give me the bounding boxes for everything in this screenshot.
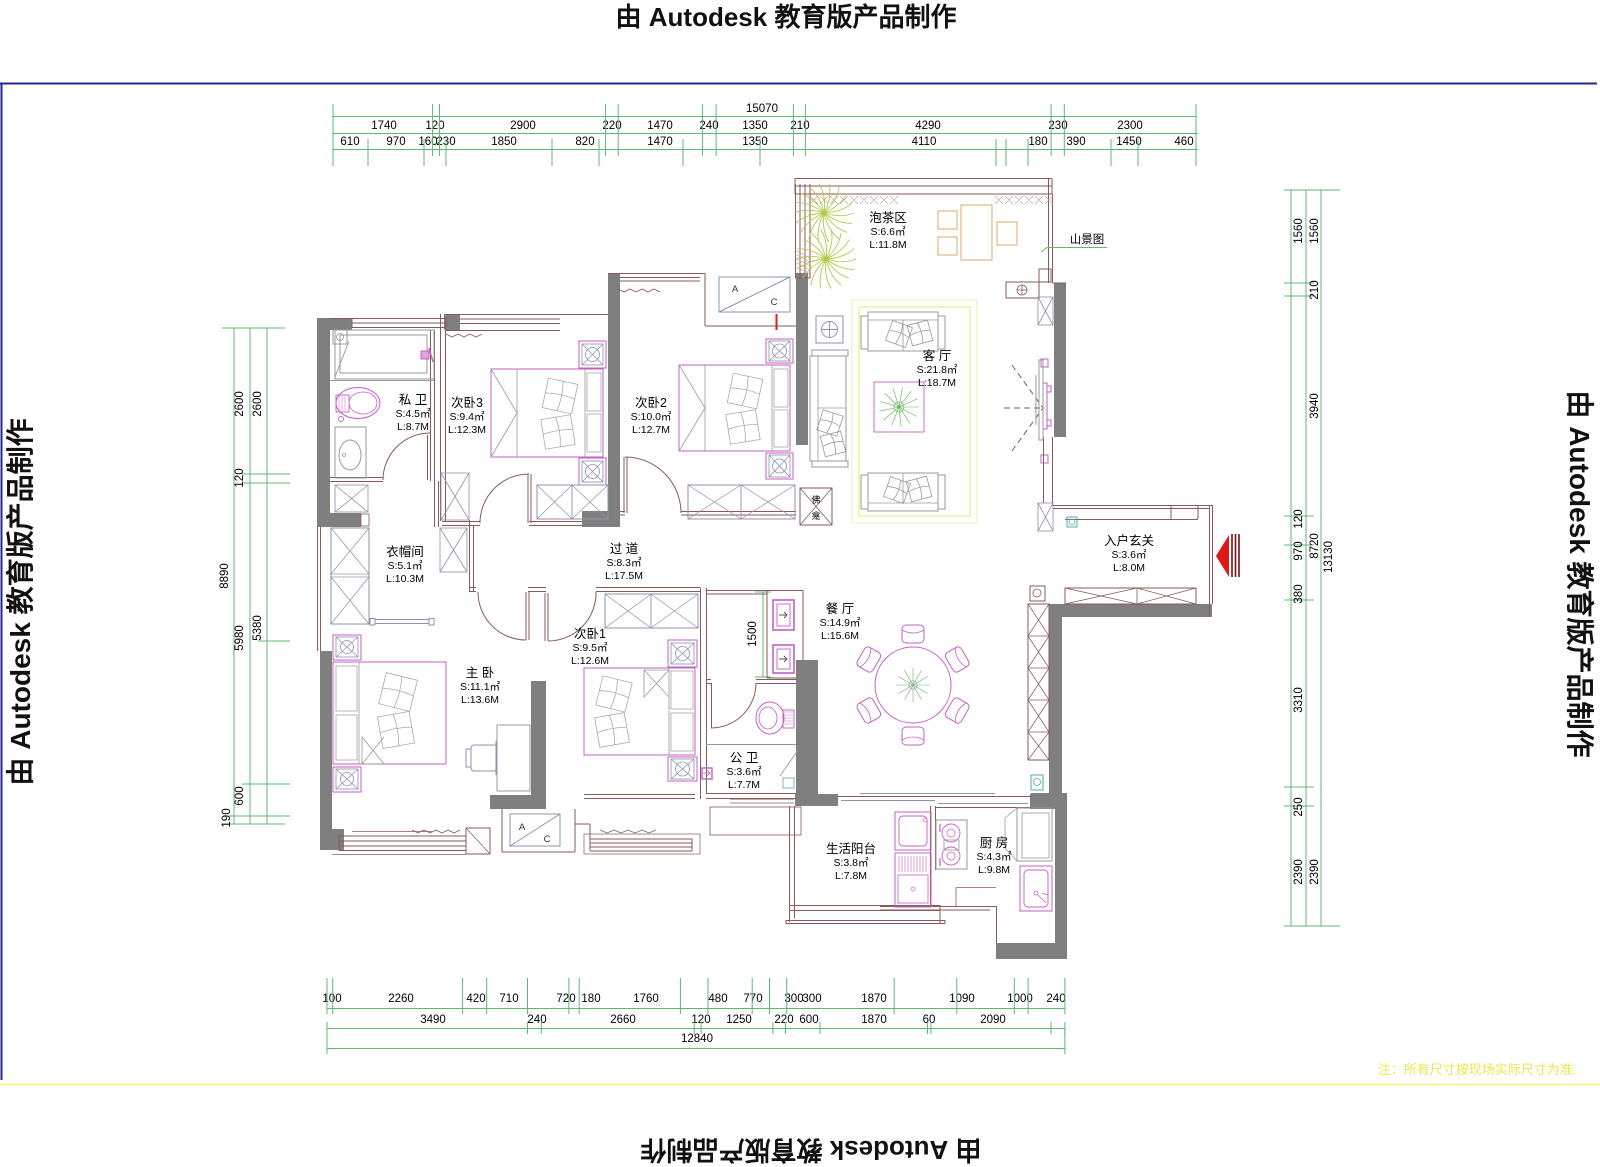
svg-text:210: 210 bbox=[1309, 280, 1321, 299]
svg-text:600: 600 bbox=[799, 1014, 818, 1026]
svg-text:710: 710 bbox=[499, 993, 518, 1005]
svg-text:S:8.3㎡: S:8.3㎡ bbox=[606, 557, 642, 569]
svg-text:190: 190 bbox=[221, 808, 233, 827]
svg-text:C: C bbox=[544, 834, 551, 845]
svg-text:私 卫: 私 卫 bbox=[399, 393, 427, 407]
svg-text:S:9.4㎡: S:9.4㎡ bbox=[449, 411, 485, 423]
svg-text:泡茶区: 泡茶区 bbox=[869, 210, 907, 225]
svg-text:300: 300 bbox=[802, 993, 821, 1005]
svg-text:S:3.8㎡: S:3.8㎡ bbox=[833, 857, 869, 869]
svg-text:2300: 2300 bbox=[1117, 120, 1143, 132]
svg-text:1090: 1090 bbox=[949, 993, 975, 1005]
svg-text:180: 180 bbox=[1028, 136, 1047, 148]
svg-text:4290: 4290 bbox=[915, 120, 941, 132]
svg-text:A: A bbox=[519, 822, 526, 833]
svg-text:120: 120 bbox=[234, 468, 246, 487]
svg-text:L:12.3M: L:12.3M bbox=[448, 424, 486, 436]
svg-text:970: 970 bbox=[386, 136, 405, 148]
svg-text:380: 380 bbox=[1293, 584, 1305, 603]
svg-text:60: 60 bbox=[923, 1014, 936, 1026]
svg-text:160: 160 bbox=[418, 136, 437, 148]
svg-text:次卧1: 次卧1 bbox=[574, 627, 606, 641]
svg-text:S:3.6㎡: S:3.6㎡ bbox=[1111, 549, 1147, 561]
svg-text:L:7.8M: L:7.8M bbox=[835, 870, 867, 882]
svg-text:衣帽间: 衣帽间 bbox=[386, 544, 424, 559]
svg-text:L:8.0M: L:8.0M bbox=[1113, 562, 1145, 574]
svg-text:820: 820 bbox=[575, 136, 594, 148]
svg-text:1870: 1870 bbox=[861, 1014, 887, 1026]
svg-text:420: 420 bbox=[466, 993, 485, 1005]
svg-text:L:15.6M: L:15.6M bbox=[821, 630, 859, 642]
svg-text:客 厅: 客 厅 bbox=[923, 348, 951, 363]
svg-text:3310: 3310 bbox=[1293, 687, 1305, 713]
svg-text:2600: 2600 bbox=[234, 391, 246, 417]
svg-text:过 道: 过 道 bbox=[610, 542, 639, 556]
svg-text:龛: 龛 bbox=[811, 510, 820, 521]
svg-text:240: 240 bbox=[527, 1014, 546, 1026]
svg-text:3490: 3490 bbox=[420, 1014, 446, 1026]
svg-text:1560: 1560 bbox=[1293, 218, 1305, 244]
svg-text:1350: 1350 bbox=[742, 120, 768, 132]
svg-text:生活阳台: 生活阳台 bbox=[826, 841, 876, 856]
svg-text:L:12.7M: L:12.7M bbox=[632, 424, 670, 436]
svg-text:13130: 13130 bbox=[1323, 541, 1335, 573]
svg-text:L:17.5M: L:17.5M bbox=[605, 570, 643, 582]
svg-text:L:18.7M: L:18.7M bbox=[918, 377, 956, 389]
svg-text:L:7.7M: L:7.7M bbox=[728, 779, 760, 791]
svg-text:120: 120 bbox=[425, 120, 444, 132]
svg-text:L:11.8M: L:11.8M bbox=[869, 239, 906, 251]
svg-text:1740: 1740 bbox=[371, 120, 397, 132]
svg-text:入户玄关: 入户玄关 bbox=[1104, 533, 1154, 548]
svg-text:佛: 佛 bbox=[811, 494, 820, 505]
svg-text:480: 480 bbox=[708, 993, 727, 1005]
svg-text:1250: 1250 bbox=[726, 1014, 752, 1026]
svg-text:8720: 8720 bbox=[1309, 533, 1321, 559]
svg-text:600: 600 bbox=[234, 786, 246, 805]
svg-text:由 Autodesk 教育版产品制作: 由 Autodesk 教育版产品制作 bbox=[641, 1135, 982, 1165]
svg-text:次卧3: 次卧3 bbox=[451, 396, 483, 410]
svg-text:1760: 1760 bbox=[633, 993, 659, 1005]
svg-text:250: 250 bbox=[1293, 797, 1305, 816]
svg-text:970: 970 bbox=[1293, 541, 1305, 560]
svg-text:L:13.6M: L:13.6M bbox=[461, 694, 499, 706]
svg-text:720: 720 bbox=[556, 993, 575, 1005]
svg-text:S:4.3㎡: S:4.3㎡ bbox=[976, 851, 1012, 863]
svg-text:L:12.6M: L:12.6M bbox=[571, 655, 609, 667]
svg-text:1350: 1350 bbox=[742, 136, 768, 148]
svg-text:注：所有尺寸按现场实际尺寸为准.: 注：所有尺寸按现场实际尺寸为准. bbox=[1378, 1062, 1577, 1077]
svg-text:180: 180 bbox=[581, 993, 600, 1005]
svg-text:1560: 1560 bbox=[1309, 218, 1321, 244]
svg-text:1870: 1870 bbox=[861, 993, 887, 1005]
svg-text:S:6.6㎡: S:6.6㎡ bbox=[870, 226, 906, 238]
svg-text:A: A bbox=[732, 284, 739, 295]
svg-text:S:9.5㎡: S:9.5㎡ bbox=[572, 642, 608, 654]
svg-text:460: 460 bbox=[1174, 136, 1193, 148]
svg-text:S:5.1㎡: S:5.1㎡ bbox=[387, 560, 423, 572]
svg-text:2090: 2090 bbox=[980, 1014, 1006, 1026]
svg-text:2260: 2260 bbox=[388, 993, 414, 1005]
svg-text:S:3.6㎡: S:3.6㎡ bbox=[726, 766, 762, 778]
svg-text:15070: 15070 bbox=[746, 103, 778, 115]
svg-text:S:14.9㎡: S:14.9㎡ bbox=[820, 617, 861, 629]
svg-text:山景图: 山景图 bbox=[1070, 233, 1105, 246]
svg-text:3940: 3940 bbox=[1309, 393, 1321, 419]
svg-text:2390: 2390 bbox=[1293, 859, 1305, 885]
svg-text:S:11.1㎡: S:11.1㎡ bbox=[460, 681, 501, 693]
svg-text:100: 100 bbox=[322, 993, 341, 1005]
svg-text:由 Autodesk 教育版产品制作: 由 Autodesk 教育版产品制作 bbox=[1564, 390, 1596, 757]
svg-text:L:8.7M: L:8.7M bbox=[397, 421, 429, 433]
svg-text:5380: 5380 bbox=[252, 615, 264, 641]
svg-text:2600: 2600 bbox=[252, 391, 264, 417]
svg-text:L:9.8M: L:9.8M bbox=[978, 864, 1010, 876]
svg-text:2390: 2390 bbox=[1309, 859, 1321, 885]
svg-text:C: C bbox=[771, 297, 778, 308]
svg-text:1470: 1470 bbox=[647, 120, 673, 132]
svg-text:S:4.5㎡: S:4.5㎡ bbox=[395, 408, 431, 420]
svg-text:1000: 1000 bbox=[1007, 993, 1033, 1005]
svg-text:L:10.3M: L:10.3M bbox=[386, 573, 424, 585]
svg-text:S:10.0㎡: S:10.0㎡ bbox=[631, 411, 672, 423]
svg-text:4110: 4110 bbox=[912, 136, 937, 148]
svg-text:1850: 1850 bbox=[491, 136, 517, 148]
svg-text:240: 240 bbox=[1046, 993, 1065, 1005]
svg-text:12840: 12840 bbox=[681, 1033, 713, 1045]
svg-text:1500: 1500 bbox=[747, 621, 759, 647]
svg-text:由 Autodesk 教育版产品制作: 由 Autodesk 教育版产品制作 bbox=[4, 418, 36, 785]
svg-text:220: 220 bbox=[774, 1014, 793, 1026]
svg-text:S:21.8㎡: S:21.8㎡ bbox=[917, 364, 958, 376]
svg-text:1470: 1470 bbox=[647, 136, 673, 148]
svg-text:390: 390 bbox=[1066, 136, 1085, 148]
svg-text:770: 770 bbox=[743, 993, 762, 1005]
svg-text:120: 120 bbox=[1293, 509, 1305, 528]
svg-text:2660: 2660 bbox=[610, 1014, 636, 1026]
svg-text:餐 厅: 餐 厅 bbox=[826, 601, 854, 616]
svg-text:8890: 8890 bbox=[219, 563, 231, 589]
svg-text:主 卧: 主 卧 bbox=[466, 666, 494, 680]
svg-text:300: 300 bbox=[784, 993, 803, 1005]
svg-text:610: 610 bbox=[340, 136, 359, 148]
svg-text:5980: 5980 bbox=[234, 625, 246, 651]
svg-text:次卧2: 次卧2 bbox=[635, 396, 667, 410]
svg-text:2900: 2900 bbox=[510, 120, 536, 132]
svg-text:由 Autodesk 教育版产品制作: 由 Autodesk 教育版产品制作 bbox=[616, 2, 957, 32]
svg-text:公 卫: 公 卫 bbox=[730, 751, 758, 765]
svg-text:厨 房: 厨 房 bbox=[980, 835, 1008, 850]
